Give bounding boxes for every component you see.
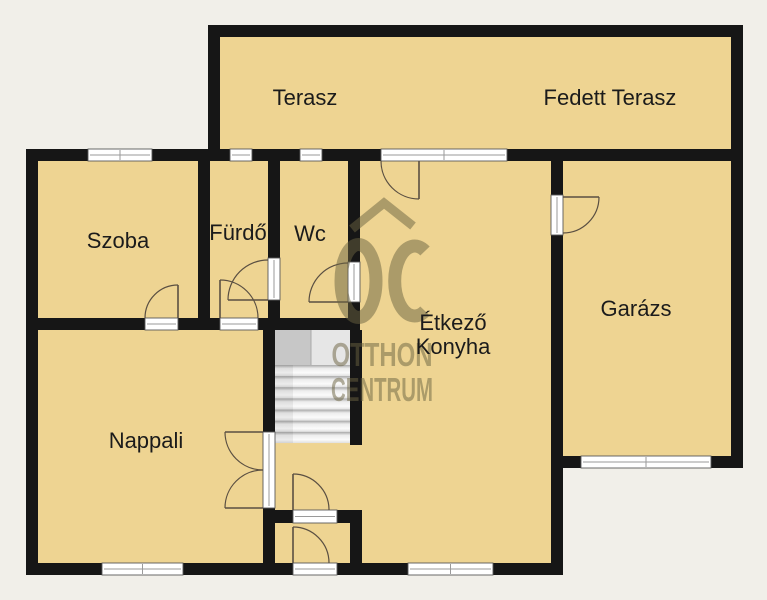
terrace-top-wall xyxy=(208,25,743,37)
vestibule-right-wall xyxy=(350,510,362,575)
room-label-terasz: Terasz xyxy=(273,85,338,110)
bedroom-row-bottom-wall xyxy=(26,318,360,330)
terrace-left-wall xyxy=(208,25,220,161)
room-label-konyha: Konyha xyxy=(416,334,491,359)
furdo-right-wall xyxy=(268,161,280,330)
room-label-furdo: Fürdő xyxy=(209,220,266,245)
stairs-upper-landing xyxy=(275,330,311,365)
floor-plan-stage: OTTHON CENTRUM Terasz Fedett Terasz Szob… xyxy=(0,0,767,600)
stairs-side-shadow xyxy=(275,365,293,443)
watermark-line2: CENTRUM xyxy=(331,371,433,408)
room-label-etkezo: Étkező xyxy=(419,310,486,335)
room-label-szoba: Szoba xyxy=(87,228,150,253)
outer-right-wall xyxy=(731,25,743,468)
floor-plan-canvas: OTTHON CENTRUM Terasz Fedett Terasz Szob… xyxy=(0,0,767,600)
room-label-wc: Wc xyxy=(294,221,326,246)
szoba-right-wall xyxy=(198,161,210,330)
house-left-wall xyxy=(26,149,38,575)
room-label-garazs: Garázs xyxy=(601,296,672,321)
room-label-nappali: Nappali xyxy=(109,428,184,453)
room-label-fedett-terasz: Fedett Terasz xyxy=(544,85,677,110)
lower-right-wall xyxy=(551,456,563,575)
